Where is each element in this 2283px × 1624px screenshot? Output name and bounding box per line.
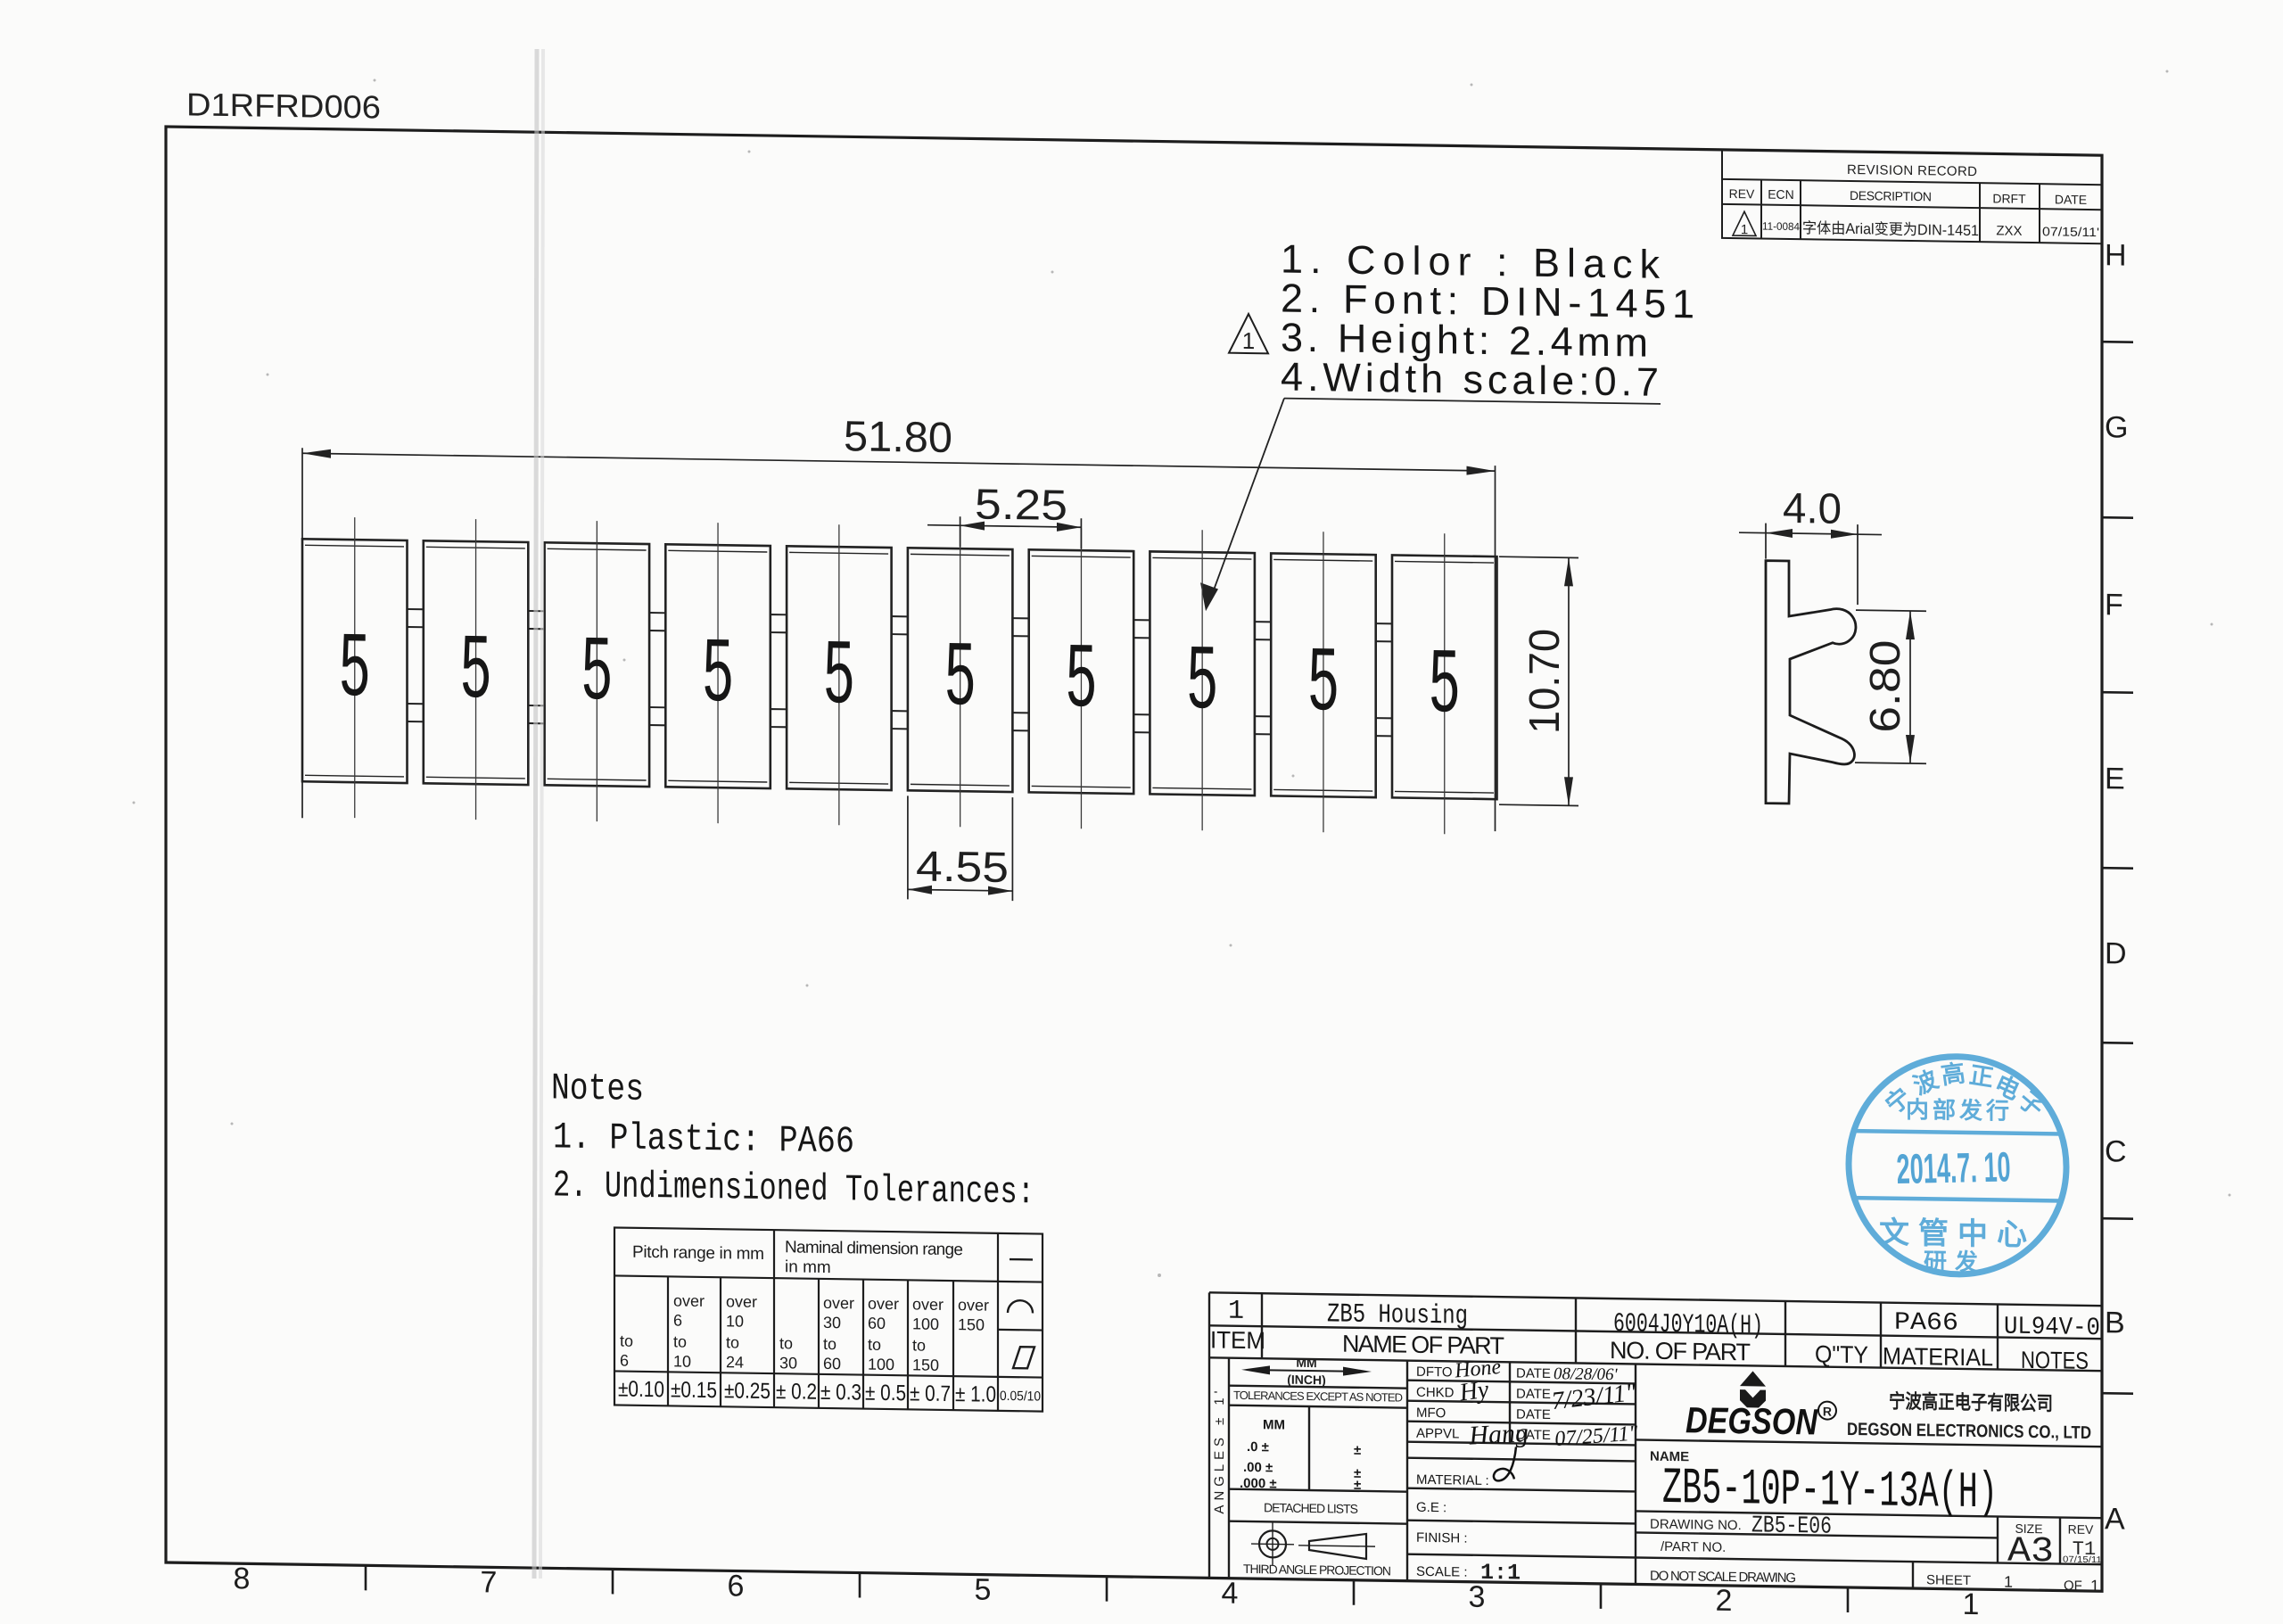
svg-text:±: ± <box>1354 1443 1361 1458</box>
svg-text:2. Undimensioned Tolerances:: 2. Undimensioned Tolerances: <box>553 1164 1034 1214</box>
svg-text:H: H <box>2105 238 2127 272</box>
svg-text:ZB5 Housing: ZB5 Housing <box>1327 1299 1468 1331</box>
svg-text:Naminal dimension range: Naminal dimension range <box>785 1238 963 1259</box>
svg-text:/PART NO.: /PART NO. <box>1661 1539 1726 1555</box>
svg-text:07/25/11": 07/25/11" <box>1554 1422 1639 1451</box>
svg-text:(INCH): (INCH) <box>1287 1373 1326 1388</box>
svg-text:±0.25: ±0.25 <box>724 1378 771 1404</box>
svg-text:7: 7 <box>481 1565 498 1599</box>
svg-text:THIRD ANGLE PROJECTION: THIRD ANGLE PROJECTION <box>1243 1562 1391 1578</box>
svg-text:over: over <box>673 1291 705 1310</box>
svg-text:6: 6 <box>728 1569 745 1603</box>
svg-text:DESCRIPTION: DESCRIPTION <box>1850 188 1932 203</box>
svg-text:10: 10 <box>673 1352 691 1370</box>
svg-text:B: B <box>2105 1306 2125 1340</box>
svg-text:DRAWING NO.: DRAWING NO. <box>1650 1517 1742 1534</box>
svg-text:±: ± <box>1354 1478 1361 1493</box>
svg-text:DEGSON ELECTRONICS CO., LTD: DEGSON ELECTRONICS CO., LTD <box>1847 1420 2091 1443</box>
svg-text:6.80: 6.80 <box>1862 639 1909 733</box>
svg-text:.0 ±: .0 ± <box>1247 1439 1269 1455</box>
svg-text:4.55: 4.55 <box>916 843 1009 892</box>
svg-text:51.80: 51.80 <box>844 413 952 462</box>
svg-text:1:1: 1:1 <box>1480 1560 1521 1587</box>
svg-text:to: to <box>620 1332 633 1350</box>
svg-text:SHEET: SHEET <box>1926 1572 1971 1588</box>
svg-text:30: 30 <box>823 1314 841 1331</box>
svg-text:C: C <box>2105 1134 2127 1168</box>
svg-text:to: to <box>673 1332 687 1350</box>
svg-text:R: R <box>1823 1405 1832 1419</box>
svg-text:A3: A3 <box>2007 1532 2054 1573</box>
svg-text:150: 150 <box>958 1315 985 1333</box>
svg-text:DRFT: DRFT <box>1992 191 2026 206</box>
svg-text:6: 6 <box>620 1352 629 1370</box>
svg-text:100: 100 <box>912 1315 939 1332</box>
svg-text:NAME OF PART: NAME OF PART <box>1342 1331 1504 1360</box>
svg-text:4: 4 <box>1222 1577 1239 1611</box>
svg-text:DATE: DATE <box>1516 1365 1551 1381</box>
svg-text:ITEM: ITEM <box>1210 1326 1265 1354</box>
svg-text:FINISH :: FINISH : <box>1416 1530 1468 1546</box>
svg-text:to: to <box>912 1336 926 1354</box>
svg-text:± 0.2: ± 0.2 <box>776 1379 817 1405</box>
svg-text:DETACHED LISTS: DETACHED LISTS <box>1264 1500 1358 1516</box>
svg-text:1. Plastic: PA66: 1. Plastic: PA66 <box>553 1116 854 1163</box>
svg-text:± 0.3: ± 0.3 <box>820 1380 861 1406</box>
svg-text:to: to <box>779 1334 793 1352</box>
svg-text:DEGSON: DEGSON <box>1685 1399 1818 1442</box>
svg-text:± 1.0: ± 1.0 <box>955 1381 996 1407</box>
svg-text:± 0.7: ± 0.7 <box>910 1381 951 1406</box>
svg-text:over: over <box>958 1296 989 1315</box>
svg-text:宁波高正电子有限公司: 宁波高正电子有限公司 <box>1889 1390 2053 1415</box>
svg-text:REVISION RECORD: REVISION RECORD <box>1847 162 1977 179</box>
svg-text:DFTO: DFTO <box>1416 1364 1453 1381</box>
svg-text:ECN: ECN <box>1768 187 1794 202</box>
svg-text:to: to <box>868 1336 881 1354</box>
svg-text:over: over <box>868 1295 899 1314</box>
svg-text:24: 24 <box>726 1353 744 1371</box>
svg-text:G: G <box>2105 410 2128 444</box>
svg-text:UL94V-0: UL94V-0 <box>2004 1314 2100 1343</box>
svg-text:REV: REV <box>1729 186 1755 201</box>
svg-text:ZB5-E06: ZB5-E06 <box>1751 1513 1832 1540</box>
svg-text:D1RFRD006: D1RFRD006 <box>186 86 381 125</box>
svg-text:高: 高 <box>1940 1059 1967 1089</box>
svg-text:OF: OF <box>2064 1579 2082 1594</box>
svg-text:MM: MM <box>1296 1356 1316 1370</box>
svg-text:over: over <box>726 1292 757 1311</box>
svg-text:1: 1 <box>2004 1573 2013 1591</box>
svg-text:D: D <box>2105 936 2127 970</box>
svg-text:2014.7. 10: 2014.7. 10 <box>1896 1142 2012 1192</box>
svg-text:±0.10: ±0.10 <box>618 1377 664 1403</box>
svg-text:0.05/10: 0.05/10 <box>1000 1389 1041 1405</box>
svg-text:100: 100 <box>868 1356 894 1373</box>
svg-text:60: 60 <box>868 1315 886 1332</box>
svg-text:MFO: MFO <box>1416 1406 1446 1421</box>
svg-text:Hang: Hang <box>1467 1418 1529 1451</box>
svg-text:DATE: DATE <box>1516 1386 1551 1402</box>
svg-text:ZXX: ZXX <box>1996 223 2022 238</box>
svg-text:APPVL: APPVL <box>1416 1426 1459 1442</box>
svg-text:over: over <box>823 1294 854 1313</box>
svg-text:Pitch range in mm: Pitch range in mm <box>632 1243 764 1264</box>
svg-text:DATE: DATE <box>2055 192 2087 207</box>
svg-text:150: 150 <box>912 1356 939 1373</box>
svg-text:Hy: Hy <box>1457 1376 1491 1407</box>
svg-text:1: 1 <box>1242 327 1255 354</box>
svg-text:MM: MM <box>1263 1417 1285 1432</box>
svg-text:ANGLES ± 1': ANGLES ± 1' <box>1212 1390 1227 1513</box>
svg-text:.000 ±: .000 ± <box>1240 1476 1277 1492</box>
svg-text:10.70: 10.70 <box>1521 629 1569 735</box>
svg-text:SCALE :: SCALE : <box>1416 1564 1468 1580</box>
svg-text:Q"TY: Q"TY <box>1815 1340 1868 1368</box>
svg-text:TOLERANCES EXCEPT AS NOTED: TOLERANCES EXCEPT AS NOTED <box>1233 1389 1403 1405</box>
svg-text:30: 30 <box>779 1354 797 1372</box>
svg-text:± 0.5: ± 0.5 <box>865 1381 906 1406</box>
svg-text:4.0: 4.0 <box>1783 485 1842 533</box>
svg-text:07/15/11': 07/15/11' <box>2042 224 2099 239</box>
svg-text:NOTES: NOTES <box>2021 1347 2089 1374</box>
svg-text:6: 6 <box>673 1311 682 1329</box>
svg-text:REV: REV <box>2068 1522 2094 1537</box>
svg-text:文管中心: 文管中心 <box>1879 1216 2036 1253</box>
svg-text:7/23/11": 7/23/11" <box>1550 1379 1638 1415</box>
svg-text:E: E <box>2105 762 2125 796</box>
svg-text:1: 1 <box>1741 222 1748 237</box>
svg-text:.00 ±: .00 ± <box>1243 1460 1273 1475</box>
svg-text:to: to <box>823 1335 837 1353</box>
svg-text:11-0084: 11-0084 <box>1762 220 1800 234</box>
svg-text:±0.15: ±0.15 <box>671 1377 717 1403</box>
svg-text:5: 5 <box>975 1572 992 1606</box>
svg-text:10: 10 <box>726 1312 744 1330</box>
svg-text:2: 2 <box>1716 1584 1733 1618</box>
svg-text:in mm: in mm <box>785 1257 831 1277</box>
svg-text:1: 1 <box>1963 1587 1980 1621</box>
svg-text:波: 波 <box>1909 1066 1943 1101</box>
svg-text:研发: 研发 <box>1924 1248 1986 1275</box>
svg-text:1: 1 <box>1228 1297 1244 1327</box>
svg-text:PA66: PA66 <box>1894 1309 1958 1338</box>
svg-text:to: to <box>726 1333 739 1351</box>
svg-text:DO NOT SCALE DRAWING: DO NOT SCALE DRAWING <box>1650 1569 1796 1586</box>
svg-text:07/15/11': 07/15/11' <box>2063 1555 2104 1566</box>
svg-text:1: 1 <box>2090 1577 2099 1595</box>
svg-text:8: 8 <box>234 1562 251 1595</box>
svg-text:MATERIAL :: MATERIAL : <box>1416 1472 1489 1488</box>
svg-text:NO. OF PART: NO. OF PART <box>1610 1337 1751 1365</box>
svg-text:字体由Arial变更为DIN-1451: 字体由Arial变更为DIN-1451 <box>1802 219 1979 239</box>
svg-text:CHKD: CHKD <box>1416 1385 1455 1401</box>
svg-text:over: over <box>912 1295 944 1314</box>
svg-text:正: 正 <box>1967 1061 1995 1092</box>
svg-text:4.Width scale:0.7: 4.Width scale:0.7 <box>1281 354 1659 405</box>
svg-text:MATERIAL: MATERIAL <box>1883 1343 1993 1372</box>
svg-text:Notes: Notes <box>551 1067 644 1111</box>
svg-text:F: F <box>2105 588 2123 622</box>
svg-text:5.25: 5.25 <box>975 481 1067 530</box>
svg-text:60: 60 <box>823 1355 841 1373</box>
svg-text:内部发行: 内部发行 <box>1906 1096 2013 1125</box>
svg-text:G.E :: G.E : <box>1416 1500 1446 1516</box>
svg-text:A: A <box>2105 1502 2125 1536</box>
